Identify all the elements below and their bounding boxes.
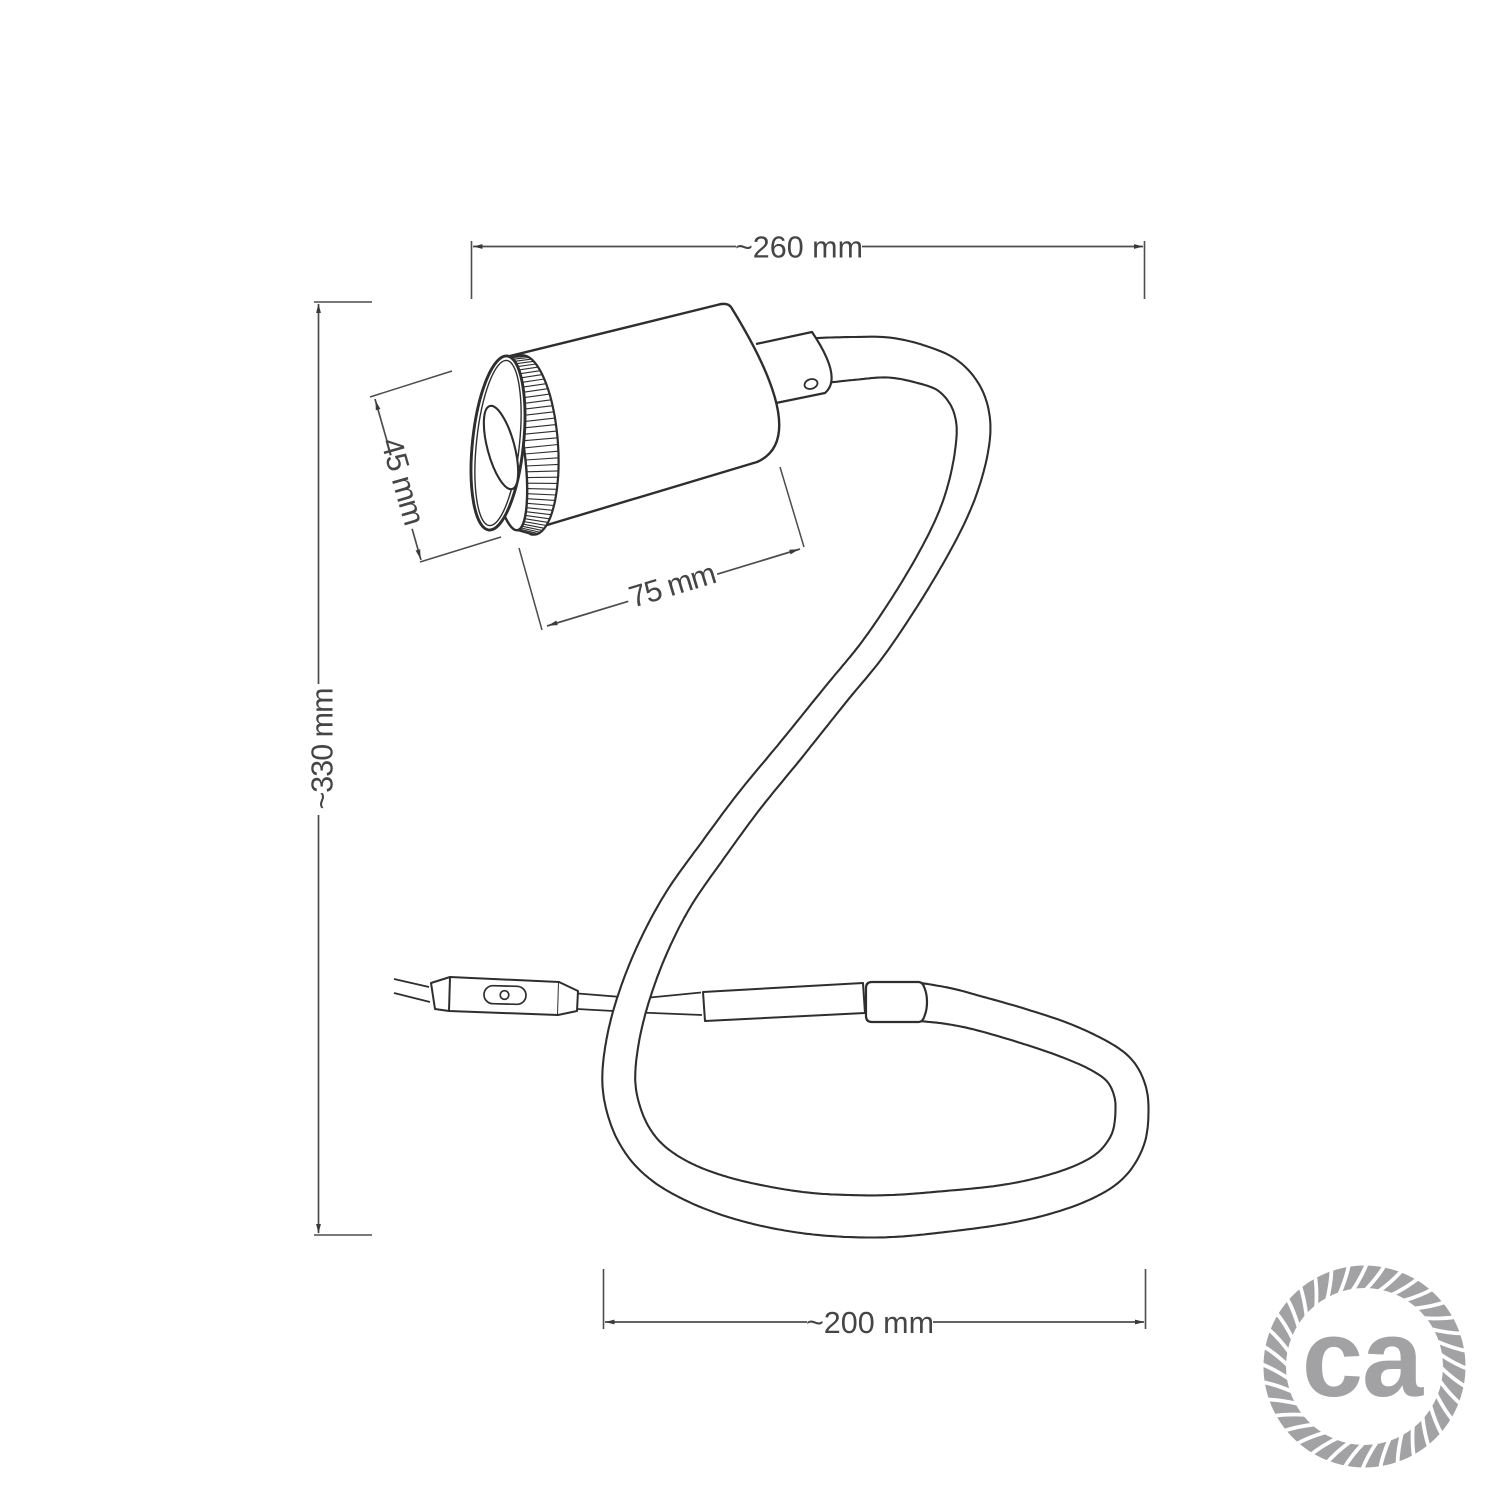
svg-text:ca: ca <box>1302 1297 1424 1420</box>
svg-text:~200 mm: ~200 mm <box>806 1306 934 1340</box>
svg-text:~260 mm: ~260 mm <box>735 231 863 265</box>
svg-text:~330 mm: ~330 mm <box>306 689 340 810</box>
